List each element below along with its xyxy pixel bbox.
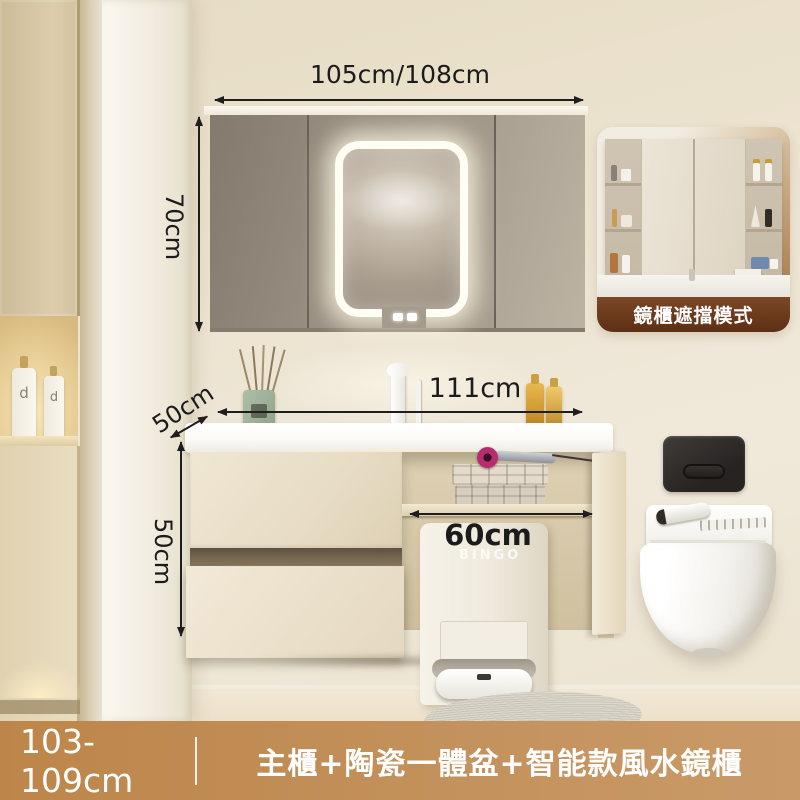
dim-open-width-arrow xyxy=(410,513,592,515)
bottom-bar: 103-109cm 主櫃+陶瓷一體盆+智能款風水鏡櫃 xyxy=(0,721,800,800)
robot-sensor xyxy=(477,674,491,680)
inset-caption: 鏡櫃遮擋模式 xyxy=(633,301,753,328)
dim-cabinet-height-label: 50cm xyxy=(149,518,177,582)
inset-open-cabinet xyxy=(605,139,782,275)
drawer-opening-shadow xyxy=(190,548,402,568)
dim-counter-width-arrow xyxy=(218,411,582,413)
reed-stick xyxy=(261,345,265,394)
inset-shelf-item xyxy=(751,205,760,227)
toilet-seat-seam xyxy=(650,540,766,543)
toilet-outlet xyxy=(692,648,726,658)
inset-caption-band: 鏡櫃遮擋模式 xyxy=(597,297,790,332)
inset-center-doors xyxy=(641,139,746,275)
mirror-touch-button xyxy=(407,313,417,321)
niche-bottle: d xyxy=(12,368,36,438)
inset-shelf-item xyxy=(611,165,617,181)
mirror-cabinet-right-door xyxy=(496,115,585,328)
inset-shelf-item xyxy=(751,257,769,269)
toe-kick-shadow xyxy=(0,700,80,714)
led-mirror xyxy=(335,141,468,317)
towel xyxy=(455,485,545,506)
hairdryer-head xyxy=(477,447,498,468)
mirror-touch-button xyxy=(393,313,403,321)
inset-card: 鏡櫃遮擋模式 xyxy=(597,127,790,332)
flush-button xyxy=(683,464,725,479)
vanity-top-drawer xyxy=(190,452,402,548)
inset-photo xyxy=(597,127,790,297)
led-ring-gap xyxy=(382,307,426,328)
shelf-line xyxy=(746,229,782,232)
reed-stick xyxy=(252,346,258,394)
dim-mirror-width-arrow xyxy=(215,99,583,101)
countertop-basin xyxy=(185,423,613,453)
inset-shelf-item xyxy=(765,209,772,227)
inset-faucet xyxy=(689,269,695,281)
mirror-arc-highlight xyxy=(343,157,460,237)
bar-divider xyxy=(195,737,197,785)
inset-shelf-item xyxy=(621,169,631,181)
mirror-cabinet xyxy=(210,115,585,332)
flush-plate xyxy=(663,436,745,492)
bottle-pump xyxy=(50,366,57,376)
vanity-open-drawer xyxy=(186,566,404,658)
left-cabinet-upper-door xyxy=(0,0,80,316)
inset-basin xyxy=(597,275,790,297)
inset-shelf-item xyxy=(622,255,630,273)
dim-cabinet-height-arrow xyxy=(180,442,182,636)
dim-open-width-label: 60cm xyxy=(428,518,548,552)
toe-kick-glow xyxy=(0,652,80,698)
inset-door-seam xyxy=(693,139,695,275)
dim-mirror-width-label: 105cm/108cm xyxy=(300,60,500,89)
pillar-side-face xyxy=(80,0,102,722)
mirror-cabinet-left-door xyxy=(210,115,307,328)
dim-counter-width-label: 111cm xyxy=(385,373,565,404)
size-range-label: 103-109cm xyxy=(20,721,192,800)
bathroom-product-scene: d d xyxy=(0,0,800,800)
inset-shelf-item xyxy=(753,163,760,181)
inset-shelf-item xyxy=(612,209,617,227)
mirror-cabinet-top-trim xyxy=(204,106,588,115)
vanity-open-door xyxy=(592,451,626,635)
bottle-label: d xyxy=(44,390,64,405)
product-title: 主櫃+陶瓷一體盆+智能款風水鏡櫃 xyxy=(205,721,794,800)
towel-stack xyxy=(452,464,548,506)
shelf-line xyxy=(605,183,641,186)
inset-shelf-item xyxy=(621,215,632,227)
inset-shelf-item xyxy=(770,259,778,269)
inset-shelf-item xyxy=(765,163,772,181)
bottle-label: d xyxy=(12,384,36,402)
inset-shelf-column-right xyxy=(746,139,782,275)
towel xyxy=(452,464,548,485)
shelf-line xyxy=(605,229,641,232)
shelf-line xyxy=(746,183,782,186)
bottle-pump xyxy=(20,356,28,368)
dim-mirror-height-label: 70cm xyxy=(160,193,188,257)
dim-mirror-height-arrow xyxy=(198,117,200,331)
inset-shelf-item xyxy=(610,253,618,273)
pillar xyxy=(102,0,192,722)
niche-bottle: d xyxy=(44,376,64,438)
inset-shelf-column-left xyxy=(605,139,641,275)
reed-diffuser-sticks xyxy=(244,348,278,394)
